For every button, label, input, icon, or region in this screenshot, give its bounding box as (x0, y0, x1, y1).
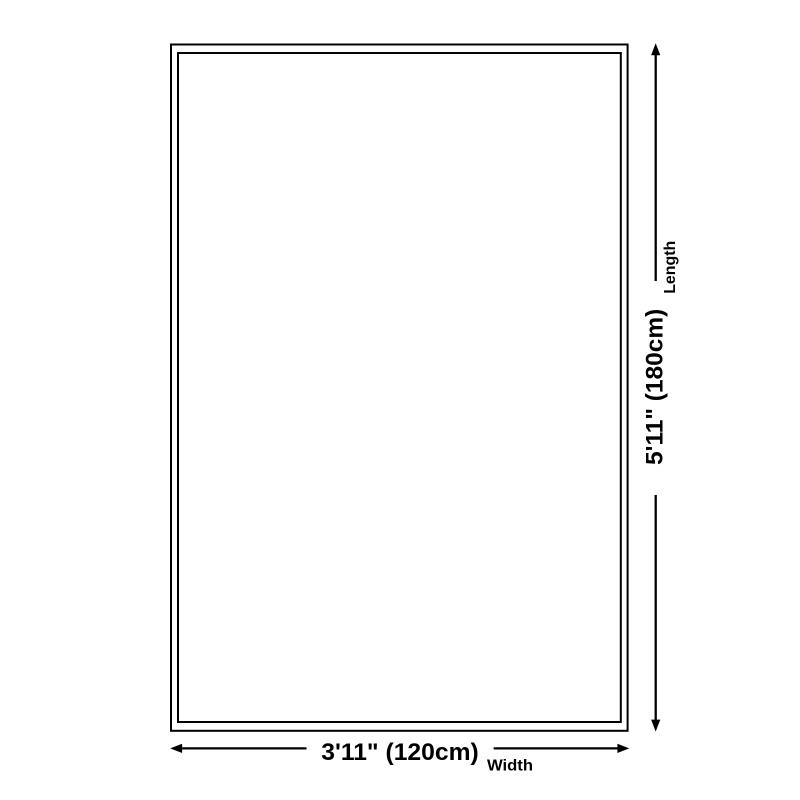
svg-text:Width: Width (487, 758, 533, 775)
svg-text:Length: Length (662, 241, 679, 294)
svg-text:3'11" (120cm): 3'11" (120cm) (321, 739, 479, 766)
svg-text:5'11" (180cm): 5'11" (180cm) (642, 309, 669, 465)
